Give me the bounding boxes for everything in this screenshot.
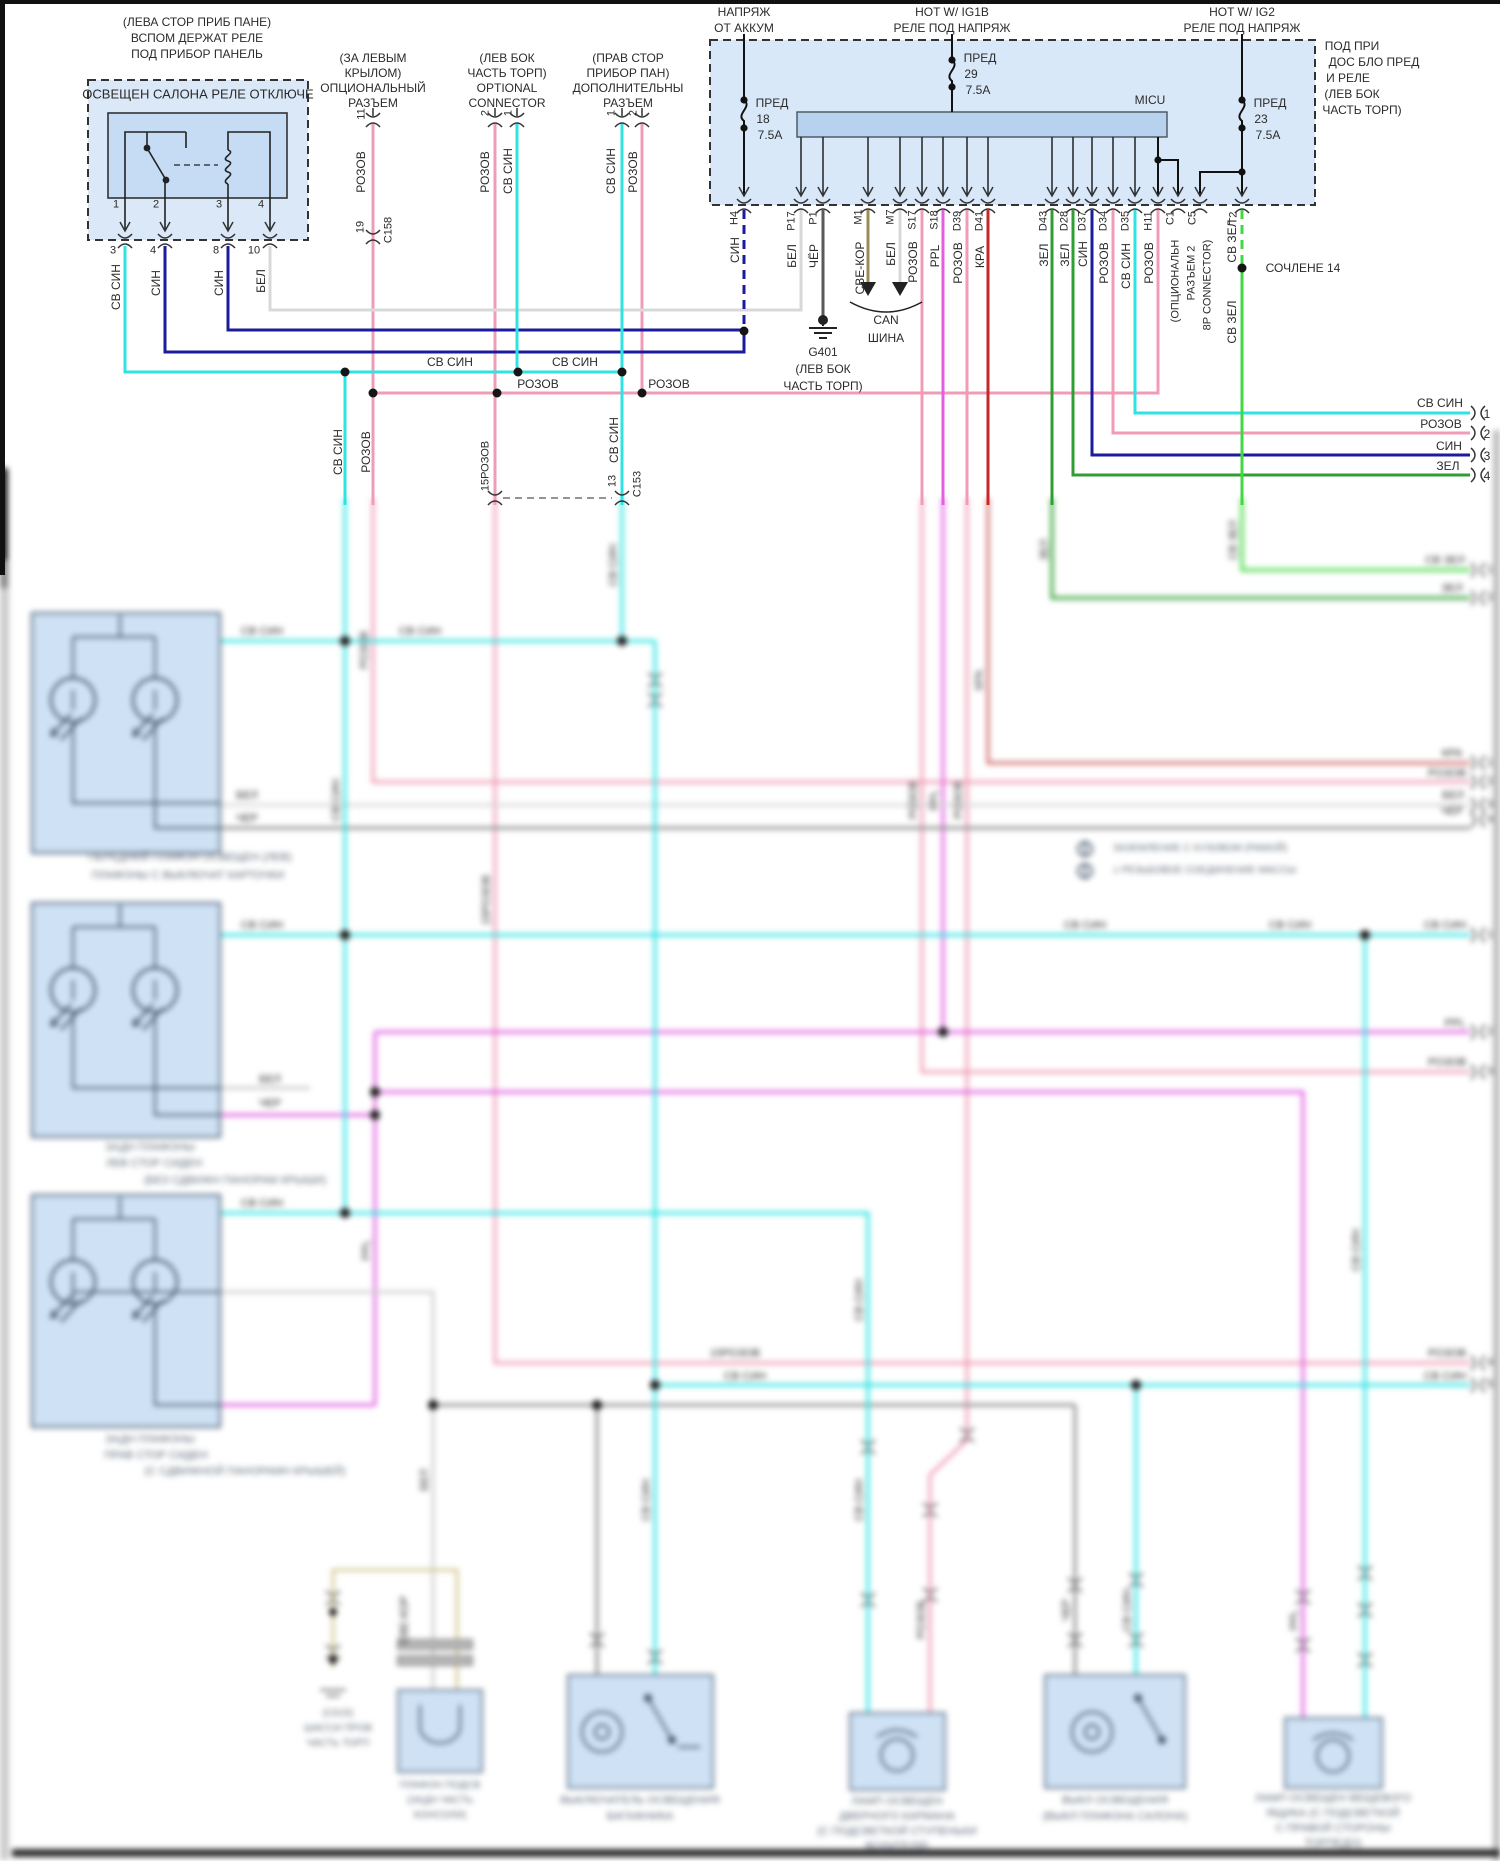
w-relay3: СИН bbox=[213, 270, 225, 296]
tap3-color: СИН bbox=[1436, 440, 1462, 452]
conn1-4: РАЗЪЕМ bbox=[348, 97, 398, 109]
opt2-3: 8P CONNECTOR) bbox=[1203, 240, 1214, 331]
opt2-1: (ОПЦИОНАЛЬН bbox=[1171, 240, 1182, 323]
tap1-num: 1 bbox=[1484, 408, 1491, 420]
w-v373: РОЗОВ bbox=[360, 431, 372, 473]
conn1-3: ОПЦИОНАЛЬНЫЙ bbox=[320, 82, 425, 94]
supply1-2: ОТ АККУМ bbox=[714, 22, 774, 34]
w-d39: РОЗОВ bbox=[952, 242, 964, 284]
net-svsin-a: СВ СИН bbox=[427, 356, 473, 368]
relay-location-3: ПОД ПРИБОР ПАНЕЛЬ bbox=[131, 48, 263, 60]
pin-m7: M7 bbox=[886, 209, 897, 224]
pin-p17: P17 bbox=[787, 211, 798, 231]
pin-d41: D41 bbox=[975, 211, 986, 231]
pin-h11: H11 bbox=[1144, 211, 1155, 230]
relay-pin-2: 2 bbox=[153, 200, 159, 211]
w-m1: СВЕ-КОР bbox=[854, 242, 866, 295]
tap4-num: 4 bbox=[1484, 470, 1491, 482]
conn2-3: OPTIONAL bbox=[477, 82, 538, 94]
conn3-3: ДОПОЛНИТЕЛЬНЫ bbox=[573, 82, 684, 94]
pin-d34: D34 bbox=[1099, 211, 1110, 231]
w-v345: СВ СИН bbox=[332, 429, 344, 475]
fuse29-1: ПРЕД bbox=[964, 52, 997, 64]
pin-m1: M1 bbox=[854, 209, 865, 224]
fuse29-3: 7.5A bbox=[966, 84, 991, 96]
opt2-2: РАЗЪЕМ 2 bbox=[1187, 246, 1198, 301]
w-p17: БЕЛ bbox=[786, 244, 798, 268]
c158: C158 bbox=[384, 217, 395, 243]
fuse29-2: 29 bbox=[964, 68, 977, 80]
conn3-4: РАЗЪЕМ bbox=[603, 97, 653, 109]
ground-g401-loc1: (ЛЕВ БОК bbox=[795, 363, 850, 375]
tap2-num: 2 bbox=[1484, 428, 1491, 440]
wiring-diagram-page: ПЕРЕДНИЙ ПЛАФОН ОСВЕЩЕН (ЛЕВ)ПЛАФОНЫ С В… bbox=[0, 0, 1500, 1861]
w-conn3b: РОЗОВ bbox=[627, 151, 639, 193]
relay-pin-4: 4 bbox=[258, 200, 264, 211]
fusebox-note-1: ПОД ПРИ bbox=[1325, 40, 1379, 52]
tap2-color: РОЗОВ bbox=[1420, 418, 1462, 430]
c153-15rozov: 15РОЗОВ bbox=[481, 441, 492, 491]
conn3-pin2: 2 bbox=[629, 110, 640, 116]
c158-pin: 19 bbox=[356, 221, 367, 233]
relay-pin-1: 1 bbox=[113, 200, 119, 211]
w-h4: СИН bbox=[729, 237, 741, 263]
w-conn3a: СВ СИН bbox=[605, 148, 617, 194]
w-d34: РОЗОВ bbox=[1098, 242, 1110, 284]
w-t2-b: СВ ЗЕЛ bbox=[1226, 300, 1238, 343]
can-1: CAN bbox=[873, 314, 898, 326]
w-d43: ЗЕЛ bbox=[1038, 243, 1050, 266]
supply3-2: РЕЛЕ ПОД НАПРЯЖ bbox=[1183, 22, 1300, 34]
conn2-pin2: 2 bbox=[481, 110, 492, 116]
supply1-1: НАПРЯЖ bbox=[718, 6, 771, 18]
splice-label: СОЧЛЕНЕ 14 bbox=[1266, 262, 1341, 274]
w-p1: ЧЁР bbox=[808, 244, 820, 268]
relay-out-3: 3 bbox=[110, 246, 116, 257]
relay-location-2: ВСПОМ ДЕРЖАТ РЕЛЕ bbox=[131, 32, 263, 44]
tap3-num: 3 bbox=[1484, 450, 1491, 462]
w-d28: ЗЕЛ bbox=[1059, 243, 1071, 266]
w-conn1: РОЗОВ bbox=[355, 151, 367, 193]
fuse23-1: ПРЕД bbox=[1254, 97, 1287, 109]
conn2-1: (ЛЕВ БОК bbox=[479, 52, 534, 64]
relay-out-8: 8 bbox=[213, 246, 219, 257]
supply2-2: РЕЛЕ ПОД НАПРЯЖ bbox=[893, 22, 1010, 34]
micu-label: MICU bbox=[1135, 94, 1166, 106]
conn2-2: ЧАСТЬ ТОРП) bbox=[467, 67, 546, 79]
pin-d35: D35 bbox=[1121, 211, 1132, 231]
net-rozov-a: РОЗОВ bbox=[517, 378, 559, 390]
pin-c1: C1 bbox=[1166, 211, 1177, 225]
conn3-2: ПРИБОР ПАН) bbox=[587, 67, 670, 79]
w-d41: КРА bbox=[974, 246, 986, 268]
fusebox-note-5: ЧАСТЬ ТОРП) bbox=[1322, 104, 1401, 116]
w-conn2a: РОЗОВ bbox=[479, 151, 491, 193]
c153-pin: 13 bbox=[608, 475, 619, 487]
ground-g401: G401 bbox=[808, 346, 837, 358]
pin-s18: S18 bbox=[930, 210, 941, 230]
relay-out-4: 4 bbox=[150, 246, 156, 257]
pin-s17: S17 bbox=[908, 210, 919, 230]
w-relay4: БЕЛ bbox=[255, 269, 267, 293]
w-d35: СВ СИН bbox=[1120, 243, 1132, 289]
fuse23-3: 7.5A bbox=[1256, 129, 1281, 141]
w-s17: РОЗОВ bbox=[907, 241, 919, 283]
supply3-1: HOT W/ IG2 bbox=[1209, 6, 1275, 18]
conn1-2: КРЫЛОМ) bbox=[345, 67, 402, 79]
w-h11: РОЗОВ bbox=[1143, 242, 1155, 284]
pin-d43: D43 bbox=[1039, 211, 1050, 231]
c153: C153 bbox=[633, 471, 644, 497]
pin-h4: H4 bbox=[730, 211, 741, 225]
fuse18-2: 18 bbox=[756, 113, 769, 125]
fusebox-note-4: (ЛЕВ БОК bbox=[1324, 88, 1379, 100]
fuse18-1: ПРЕД bbox=[756, 97, 789, 109]
tap1-color: СВ СИН bbox=[1417, 397, 1463, 409]
net-rozov-b: РОЗОВ bbox=[648, 378, 690, 390]
pin-d39: D39 bbox=[953, 211, 964, 231]
ground-g401-loc2: ЧАСТЬ ТОРП) bbox=[783, 380, 862, 392]
w-conn2b: СВ СИН bbox=[502, 148, 514, 194]
conn1-pin: 11 bbox=[357, 108, 368, 119]
w-t2-a: СВ ЗЕЛ bbox=[1226, 219, 1238, 262]
conn2-4: CONNECTOR bbox=[468, 97, 545, 109]
relay-title: ОСВЕЩЕН САЛОНА РЕЛЕ ОТКЛЮЧЕ bbox=[82, 88, 313, 101]
conn1-1: (ЗА ЛЕВЫМ bbox=[339, 52, 406, 64]
conn3-1: (ПРАВ СТОР bbox=[592, 52, 664, 64]
net-svsin-b: СВ СИН bbox=[552, 356, 598, 368]
pin-p1: P1 bbox=[809, 211, 820, 224]
fusebox-note-3: И РЕЛЕ bbox=[1326, 72, 1370, 84]
w-v622: СВ СИН bbox=[608, 417, 620, 463]
fuse23-2: 23 bbox=[1254, 113, 1267, 125]
pin-d37: D37 bbox=[1078, 211, 1089, 231]
pin-d28: D28 bbox=[1060, 211, 1071, 231]
relay-pin-3: 3 bbox=[216, 200, 222, 211]
w-relay1: СВ СИН bbox=[110, 264, 122, 310]
w-d37: СИН bbox=[1077, 241, 1089, 267]
w-m7: БЕЛ bbox=[885, 242, 897, 266]
pin-c5: C5 bbox=[1188, 211, 1199, 225]
fuse18-3: 7.5A bbox=[758, 129, 783, 141]
w-s18: PPL bbox=[929, 245, 941, 268]
w-relay2: СИН bbox=[150, 270, 162, 296]
schematic-labels: (ЛЕВА СТОР ПРИБ ПАНЕ)ВСПОМ ДЕРЖАТ РЕЛЕПО… bbox=[0, 0, 1500, 1861]
conn2-pin1: 1 bbox=[504, 110, 515, 116]
fusebox-note-2: ДОС БЛО ПРЕД bbox=[1329, 56, 1420, 68]
relay-location-1: (ЛЕВА СТОР ПРИБ ПАНЕ) bbox=[123, 16, 271, 28]
tap4-color: ЗЕЛ bbox=[1436, 460, 1459, 472]
relay-out-10: 10 bbox=[248, 246, 260, 257]
conn3-pin1: 1 bbox=[607, 110, 618, 116]
supply2-1: HOT W/ IG1B bbox=[915, 6, 989, 18]
can-2: ШИНА bbox=[868, 332, 904, 344]
